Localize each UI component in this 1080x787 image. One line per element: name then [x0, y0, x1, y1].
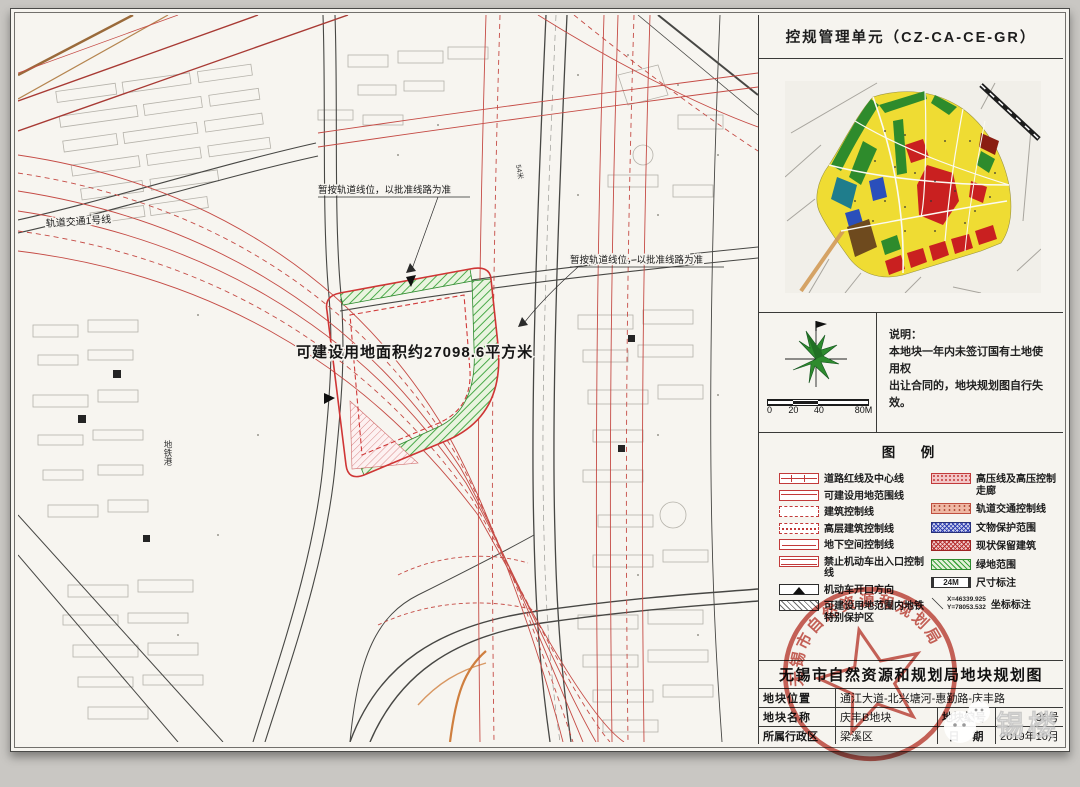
- legend-item: 可建设用地范围内地铁特别保护区: [779, 600, 929, 624]
- road-redline-swatch: [779, 473, 819, 484]
- label-metro-port: 地铁港: [163, 439, 173, 466]
- vehicle-opening-swatch: [779, 584, 819, 595]
- hv-corridor-swatch: [931, 473, 971, 484]
- metro-protect-swatch: [779, 600, 819, 611]
- number-label: 地块编号: [937, 708, 995, 726]
- table-row-location: 地块位置 通江大道-北兴塘河-惠勤路-庆丰路: [759, 689, 1063, 708]
- date-value: 2019年10月: [995, 727, 1063, 744]
- bureau-title-bar: 无锡市自然资源和规划局地块规划图: [759, 661, 1063, 689]
- location-value: 通江大道-北兴塘河-惠勤路-庆丰路: [835, 689, 1063, 707]
- legend-item: 高压线及高压控制走廊: [931, 473, 1061, 497]
- legend-item: 可建设用地范围线: [779, 490, 929, 503]
- compass-cell: 0 20 40 80M: [759, 313, 877, 432]
- legend-item: 绿地范围: [931, 559, 1061, 572]
- legend-title: 图 例: [759, 441, 1063, 461]
- legend-item-coord: X=46339.925 Y=78053.532 坐标标注: [931, 596, 1061, 612]
- legend-item: 禁止机动车出入口控制线: [779, 556, 929, 580]
- label-dim-54m: 54米: [514, 164, 525, 180]
- green-space-swatch: [931, 559, 971, 570]
- legend-right-column: 高压线及高压控制走廊 轨道交通控制线 文物保护范围 现状保留建筑 绿地范围 24…: [931, 473, 1061, 612]
- coord-x: X=46339.925: [947, 596, 986, 604]
- scale-tick: 80M: [855, 405, 873, 415]
- note-title: 说明：: [889, 327, 1053, 344]
- legend-item: 高层建筑控制线: [779, 523, 929, 536]
- note-line1: 本地块一年内未签订国有土地使用权: [889, 344, 1053, 378]
- zoning-inset-map: [785, 81, 1041, 293]
- table-row-name: 地块名称 庆丰B地块 地块编号 36号: [759, 708, 1063, 727]
- zoning-inset-section: [759, 59, 1063, 313]
- coord-y: Y=78053.532: [947, 604, 986, 612]
- scale-tick: 20: [788, 405, 798, 415]
- legend-left-column: 道路红线及中心线 可建设用地范围线 建筑控制线 高层建筑控制线 地下空间控制线 …: [779, 473, 929, 624]
- retained-building-swatch: [931, 540, 971, 551]
- no-entry-control-swatch: [779, 556, 819, 567]
- north-compass-icon: [779, 317, 853, 397]
- name-label: 地块名称: [759, 708, 835, 726]
- plan-sheet: 轨道交通1号线 暂按轨道线位，以批准线路为准 暂按轨道线位，以批准线路为准 可建…: [10, 8, 1070, 752]
- district-label: 所属行政区: [759, 727, 835, 744]
- district-value: 梁溪区: [835, 727, 937, 744]
- table-row-district: 所属行政区 梁溪区 日 期 2019年10月: [759, 727, 1063, 744]
- scale-tick: 40: [814, 405, 824, 415]
- building-footprints: [33, 47, 723, 732]
- legend-item: 机动车开口方向: [779, 584, 929, 597]
- relic-protect-swatch: [931, 522, 971, 533]
- scale-bar: 0 20 40 80M: [767, 399, 869, 416]
- coordinate-sample: X=46339.925 Y=78053.532: [931, 596, 986, 612]
- coord-leader-icon: [931, 596, 945, 612]
- number-value: 36号: [995, 708, 1063, 726]
- legend-item: 24M尺寸标注: [931, 577, 1061, 590]
- ramp-roads: [18, 15, 486, 742]
- label-buildable-area: 可建设用地面积约27098.6平方米: [296, 343, 533, 361]
- date-label: 日 期: [937, 727, 995, 744]
- label-rail-note-1: 暂按轨道线位，以批准线路为准: [318, 184, 452, 196]
- building-control-swatch: [779, 506, 819, 517]
- buildable-range-swatch: [779, 490, 819, 501]
- legend-item: 建筑控制线: [779, 506, 929, 519]
- name-value: 庆丰B地块: [835, 708, 937, 726]
- highrise-control-swatch: [779, 523, 819, 534]
- red-control-lines: [18, 15, 758, 742]
- note-section: 0 20 40 80M 说明： 本地块一年内未签订国有土地使用权 出让合同的，地…: [759, 313, 1063, 433]
- bureau-title: 无锡市自然资源和规划局地块规划图: [779, 664, 1043, 685]
- site-map: 轨道交通1号线 暂按轨道线位，以批准线路为准 暂按轨道线位，以批准线路为准 可建…: [18, 15, 758, 742]
- note-line2: 出让合同的，地块规划图自行失效。: [889, 378, 1053, 412]
- label-rail-line1: 轨道交通1号线: [45, 212, 111, 230]
- main-map-area: 轨道交通1号线 暂按轨道线位，以批准线路为准 暂按轨道线位，以批准线路为准 可建…: [18, 15, 758, 742]
- legend-section: 图 例 道路红线及中心线 可建设用地范围线 建筑控制线 高层建筑控制线 地下空间…: [759, 433, 1063, 661]
- note-text: 说明： 本地块一年内未签订国有土地使用权 出让合同的，地块规划图自行失效。: [877, 313, 1063, 432]
- unit-title-bar: 控规管理单元（CZ-CA-CE-GR）: [759, 15, 1063, 59]
- unit-title: 控规管理单元（CZ-CA-CE-GR）: [786, 26, 1037, 47]
- info-panel: 控规管理单元（CZ-CA-CE-GR）: [758, 15, 1063, 744]
- location-label: 地块位置: [759, 689, 835, 707]
- green-strip-top: [340, 269, 472, 305]
- legend-item: 文物保护范围: [931, 522, 1061, 535]
- dimension-swatch: 24M: [931, 577, 971, 588]
- legend-item: 道路红线及中心线: [779, 473, 929, 486]
- plot-info-table: 地块位置 通江大道-北兴塘河-惠勤路-庆丰路 地块名称 庆丰B地块 地块编号 3…: [759, 689, 1063, 744]
- legend-item: 轨道交通控制线: [931, 503, 1061, 516]
- scale-tick: 0: [767, 405, 772, 415]
- label-rail-note-2: 暂按轨道线位，以批准线路为准: [570, 254, 704, 266]
- rail-control-swatch: [931, 503, 971, 514]
- legend-item: 地下空间控制线: [779, 539, 929, 552]
- underground-control-swatch: [779, 539, 819, 550]
- legend-item: 现状保留建筑: [931, 540, 1061, 553]
